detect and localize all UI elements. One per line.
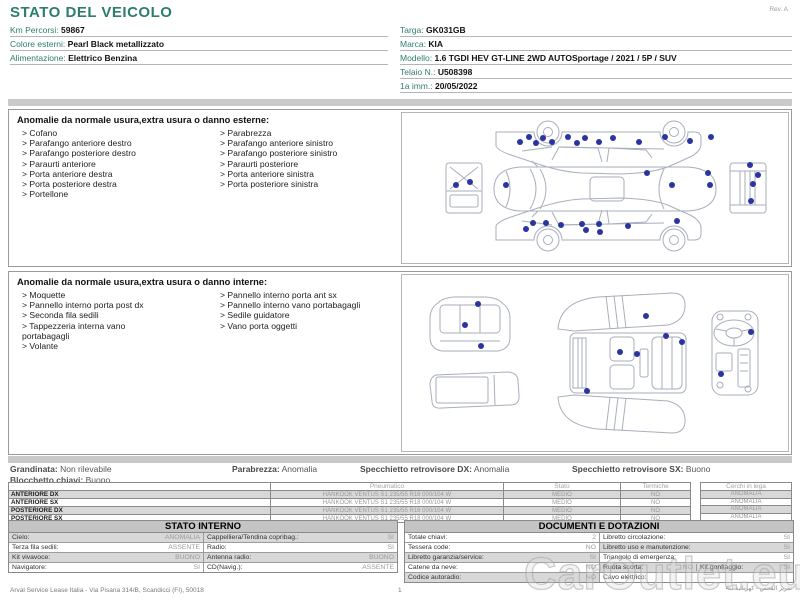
list-item: > Paraurti posteriore bbox=[220, 159, 370, 169]
list-item: > Pannello interno porta post dx bbox=[22, 300, 172, 310]
specchietto-dx-label: Specchietto retrovisore DX: bbox=[360, 464, 472, 474]
interior-anomalies-panel: Anomalie da normale usura,extra usura o … bbox=[8, 271, 792, 455]
list-item: > Pannello interno porta ant sx bbox=[220, 290, 370, 300]
list-item: > Parafango posteriore destro bbox=[22, 148, 172, 158]
exterior-damage-diagram bbox=[401, 112, 789, 264]
tyre-stato: MEDIO bbox=[504, 499, 621, 507]
tyre-spec: HANKOOK VENTUS S1 235/55 R18 000/104 W bbox=[271, 499, 504, 507]
grandinata-value: Non rilevabile bbox=[60, 464, 112, 474]
grandinata-item: Grandinata: Non rilevabile bbox=[10, 464, 112, 474]
cell: Navigatore:SI bbox=[9, 563, 203, 572]
km-label: Km Percorsi: bbox=[10, 25, 59, 35]
colore-value: Pearl Black metallizzato bbox=[68, 39, 164, 49]
interior-car-views bbox=[402, 275, 788, 451]
parabrezza-value: Anomalia bbox=[282, 464, 317, 474]
modello-value: 1.6 TGDI HEV GT-LINE 2WD AUTOSportage / … bbox=[435, 53, 677, 63]
field-label: Catene da neve: bbox=[408, 564, 458, 571]
field-label: Ruota scorta: bbox=[603, 564, 643, 571]
field-label: Totale chiavi: bbox=[408, 534, 447, 541]
list-item: > Parafango anteriore destro bbox=[22, 138, 172, 148]
stato-interno-table: STATO INTERNO Cielo:ANOMALIA Cappelliera… bbox=[8, 520, 398, 573]
field-value: 2 bbox=[589, 534, 596, 541]
modello-label: Modello: bbox=[400, 53, 432, 63]
list-item: > Pannello interno vano portabagagli bbox=[220, 300, 370, 310]
cell: Radio:SI bbox=[203, 543, 397, 552]
table-row: Catene da neve:NO Ruota scorta:NO Kit go… bbox=[405, 563, 793, 573]
cell: Catene da neve:NO bbox=[405, 563, 599, 572]
list-item: > Porta posteriore sinistra bbox=[220, 179, 370, 189]
cerchi-row: ANOMALIA bbox=[701, 506, 792, 514]
tyre-termiche: NO bbox=[621, 491, 691, 499]
tyre-termiche: NO bbox=[621, 499, 691, 507]
tyres-header-pneumatico: Pneumatico bbox=[271, 483, 504, 491]
targa-label: Targa: bbox=[400, 25, 424, 35]
list-item: > Parabrezza bbox=[220, 128, 370, 138]
revision-label: Rev. A bbox=[769, 6, 788, 13]
exterior-car-views bbox=[402, 113, 788, 263]
table-row: Libretto garanzia/service:SI Triangolo d… bbox=[405, 553, 793, 563]
list-item: > Seconda fila sedili bbox=[22, 310, 172, 320]
tyre-row: POSTERIORE DX HANKOOK VENTUS S1 235/55 R… bbox=[9, 507, 691, 515]
table-row: Cielo:ANOMALIA Cappelliera/Tendina copri… bbox=[9, 533, 397, 543]
cerchi-header: Cerchi in lega bbox=[701, 483, 792, 491]
km-value: 59867 bbox=[61, 25, 85, 35]
cerchi-table: Cerchi in lega ANOMALIA ANOMALIA ANOMALI… bbox=[700, 482, 792, 521]
imm-label: 1a imm.: bbox=[400, 81, 433, 91]
cell: Triangolo di emergenza:SI bbox=[599, 553, 793, 562]
field-value: SI bbox=[781, 534, 790, 541]
documenti-table: DOCUMENTI E DOTAZIONI Totale chiavi:2 Li… bbox=[404, 520, 794, 583]
field-value: SI bbox=[587, 554, 596, 561]
grandinata-label: Grandinata: bbox=[10, 464, 58, 474]
info-row-alimentazione: Alimentazione: Elettrico Benzina bbox=[10, 51, 388, 65]
cell: Totale chiavi:2 bbox=[405, 533, 599, 542]
cerchi-header-row: Cerchi in lega bbox=[701, 483, 792, 491]
list-item: > Parafango anteriore sinistro bbox=[220, 138, 370, 148]
interior-list-col2: > Pannello interno porta ant sx > Pannel… bbox=[220, 290, 370, 351]
field-label: Triangolo di emergenza: bbox=[603, 554, 676, 561]
parabrezza-label: Parabrezza: bbox=[232, 464, 280, 474]
field-label: Kit vivavoce: bbox=[12, 554, 50, 561]
info-row-modello: Modello: 1.6 TGDI HEV GT-LINE 2WD AUTOSp… bbox=[400, 51, 792, 65]
list-item: > Porta anteriore destra bbox=[22, 169, 172, 179]
list-item: > Paraurti anteriore bbox=[22, 159, 172, 169]
cell: Kit vivavoce:BUONO bbox=[9, 553, 203, 562]
footer-page-number: 1 bbox=[398, 587, 402, 594]
vehicle-condition-report: { "colors": { "accent": "#2e7d6e", "dot"… bbox=[0, 0, 800, 600]
colore-label: Colore esterni: bbox=[10, 39, 65, 49]
stato-interno-title: STATO INTERNO bbox=[9, 521, 397, 533]
separator-bar-bottom bbox=[8, 456, 792, 463]
field-value: SI bbox=[191, 564, 200, 571]
list-item: > Sedile guidatore bbox=[220, 310, 370, 320]
list-item: > Tappezzeria interna vano portabagagli bbox=[22, 321, 172, 341]
tyre-termiche: NO bbox=[621, 507, 691, 515]
specchietto-dx-value: Anomalia bbox=[474, 464, 509, 474]
cell: Libretto garanzia/service:SI bbox=[405, 553, 599, 562]
list-item: > Porta posteriore destra bbox=[22, 179, 172, 189]
tyre-stato: MEDIO bbox=[504, 491, 621, 499]
sub-cell: Kit gonfiaggio:SI bbox=[696, 564, 790, 571]
cerchi-row: ANOMALIA bbox=[701, 491, 792, 499]
field-value: NO bbox=[583, 544, 596, 551]
tyre-position: POSTERIORE DX bbox=[9, 507, 271, 515]
field-label: Cappelliera/Tendina copribag.: bbox=[207, 534, 299, 541]
tyres-header-stato: Stato bbox=[504, 483, 621, 491]
separator-bar-top bbox=[8, 99, 792, 106]
field-label: CD(Navig.): bbox=[207, 564, 243, 571]
cell: Libretto circolazione:SI bbox=[599, 533, 793, 542]
tyres-header-termiche: Termiche bbox=[621, 483, 691, 491]
cell: Antenna radio:BUONO bbox=[203, 553, 397, 562]
list-item: > Moquette bbox=[22, 290, 172, 300]
field-value: SI bbox=[781, 564, 790, 571]
vehicle-info-right: Targa: GK031GB Marca: KIA Modello: 1.6 T… bbox=[400, 23, 792, 93]
alimentazione-value: Elettrico Benzina bbox=[68, 53, 137, 63]
field-label: Antenna radio: bbox=[207, 554, 251, 561]
exterior-anomalies-panel: Anomalie da normale usura,extra usura o … bbox=[8, 109, 792, 267]
cell: Tessera code:NO bbox=[405, 543, 599, 552]
targa-value: GK031GB bbox=[426, 25, 466, 35]
cerchi-row: ANOMALIA bbox=[701, 498, 792, 506]
list-item: > Portellone bbox=[22, 189, 172, 199]
page-title: STATO DEL VEICOLO bbox=[10, 4, 172, 21]
info-row-marca: Marca: KIA bbox=[400, 37, 792, 51]
table-row: Totale chiavi:2 Libretto circolazione:SI bbox=[405, 533, 793, 543]
field-value: BUONO bbox=[366, 554, 394, 561]
info-row-immatricolazione: 1a imm.: 20/05/2022 bbox=[400, 79, 792, 93]
info-row-km: Km Percorsi: 59867 bbox=[10, 23, 388, 37]
parabrezza-item: Parabrezza: Anomalia bbox=[232, 464, 317, 474]
info-row-targa: Targa: GK031GB bbox=[400, 23, 792, 37]
cell: Ruota scorta:NO Kit gonfiaggio:SI bbox=[599, 563, 793, 572]
tyre-spec: HANKOOK VENTUS S1 235/55 R18 000/104 W bbox=[271, 491, 504, 499]
table-row: Kit vivavoce:BUONO Antenna radio:BUONO bbox=[9, 553, 397, 563]
tyres-table: Pneumatico Stato Termiche ANTERIORE DX H… bbox=[8, 482, 691, 523]
footer-note: 4D تقرير الفحص - كهربائية bbox=[726, 585, 792, 592]
tyres-header-row: Pneumatico Stato Termiche bbox=[9, 483, 691, 491]
list-item: > Parafango posteriore sinistro bbox=[220, 148, 370, 158]
documenti-title: DOCUMENTI E DOTAZIONI bbox=[405, 521, 793, 533]
field-value: ANOMALIA bbox=[162, 534, 200, 541]
cell: Terza fila sedili:ASSENTE bbox=[9, 543, 203, 552]
table-row: Tessera code:NO Libretto uso e manutenzi… bbox=[405, 543, 793, 553]
exterior-list-col2: > Parabrezza > Parafango anteriore sinis… bbox=[220, 128, 370, 199]
field-label: Libretto garanzia/service: bbox=[408, 554, 484, 561]
table-row: Terza fila sedili:ASSENTE Radio:SI bbox=[9, 543, 397, 553]
tyre-position: ANTERIORE DX bbox=[9, 491, 271, 499]
sub-cell: Ruota scorta:NO bbox=[603, 564, 693, 571]
field-value: SI bbox=[781, 544, 790, 551]
field-label: Cielo: bbox=[12, 534, 29, 541]
field-value: BUONO bbox=[172, 554, 200, 561]
field-label: Libretto circolazione: bbox=[603, 534, 665, 541]
telaio-label: Telaio N.: bbox=[400, 67, 435, 77]
exterior-list-col1: > Cofano > Parafango anteriore destro > … bbox=[22, 128, 172, 199]
cell: CD(Navig.):ASSENTE bbox=[203, 563, 397, 572]
cerchi-value: ANOMALIA bbox=[701, 491, 792, 499]
field-value: NO bbox=[583, 564, 596, 571]
specchietto-dx-item: Specchietto retrovisore DX: Anomalia bbox=[360, 464, 509, 474]
field-value: ASSENTE bbox=[359, 564, 394, 571]
field-value: NO bbox=[680, 564, 693, 571]
specchietto-sx-item: Specchietto retrovisore SX: Buono bbox=[572, 464, 710, 474]
alimentazione-label: Alimentazione: bbox=[10, 53, 66, 63]
cell: Codice autoradio:NO bbox=[405, 573, 599, 582]
cell: Cielo:ANOMALIA bbox=[9, 533, 203, 542]
cerchi-value: ANOMALIA bbox=[701, 498, 792, 506]
imm-value: 20/05/2022 bbox=[435, 81, 478, 91]
marca-value: KIA bbox=[428, 39, 443, 49]
field-label: Terza fila sedili: bbox=[12, 544, 58, 551]
field-value: SI bbox=[781, 554, 790, 561]
field-label: Tessera code: bbox=[408, 544, 450, 551]
footer-company: Arval Service Lease Italia - Via Pisana … bbox=[10, 587, 204, 594]
field-value: ASSENTE bbox=[165, 544, 200, 551]
info-row-colore: Colore esterni: Pearl Black metallizzato bbox=[10, 37, 388, 51]
field-label: Kit gonfiaggio: bbox=[700, 564, 743, 571]
tyre-stato: MEDIO bbox=[504, 507, 621, 515]
cell: Libretto uso e manutenzione:SI bbox=[599, 543, 793, 552]
field-value: NO bbox=[583, 574, 596, 581]
specchietto-sx-label: Specchietto retrovisore SX: bbox=[572, 464, 683, 474]
specchietto-sx-value: Buono bbox=[686, 464, 711, 474]
interior-list-col1: > Moquette > Pannello interno porta post… bbox=[22, 290, 172, 351]
info-row-telaio: Telaio N.: U508398 bbox=[400, 65, 792, 79]
field-label: Radio: bbox=[207, 544, 227, 551]
tyres-header-empty bbox=[9, 483, 271, 491]
tyre-spec: HANKOOK VENTUS S1 235/55 R18 000/104 W bbox=[271, 507, 504, 515]
field-label: Codice autoradio: bbox=[408, 574, 461, 581]
list-item: > Cofano bbox=[22, 128, 172, 138]
field-label: Navigatore: bbox=[12, 564, 47, 571]
cell: Cappelliera/Tendina copribag.:SI bbox=[203, 533, 397, 542]
vehicle-info-left: Km Percorsi: 59867 Colore esterni: Pearl… bbox=[10, 23, 388, 65]
list-item: > Volante bbox=[22, 341, 172, 351]
cell: Cavo elettrico: bbox=[599, 573, 793, 582]
field-label: Libretto uso e manutenzione: bbox=[603, 544, 691, 551]
table-row: Navigatore:SI CD(Navig.):ASSENTE bbox=[9, 563, 397, 572]
telaio-value: U508398 bbox=[438, 67, 473, 77]
list-item: > Vano porta oggetti bbox=[220, 321, 370, 331]
marca-label: Marca: bbox=[400, 39, 426, 49]
field-label: Cavo elettrico: bbox=[603, 574, 646, 581]
tyre-position: ANTERIORE SX bbox=[9, 499, 271, 507]
tyre-row: ANTERIORE DX HANKOOK VENTUS S1 235/55 R1… bbox=[9, 491, 691, 499]
list-item: > Porta anteriore sinistra bbox=[220, 169, 370, 179]
table-row: Codice autoradio:NO Cavo elettrico: bbox=[405, 573, 793, 582]
cerchi-value: ANOMALIA bbox=[701, 506, 792, 514]
interior-damage-diagram bbox=[401, 274, 789, 452]
field-value: SI bbox=[385, 534, 394, 541]
tyre-row: ANTERIORE SX HANKOOK VENTUS S1 235/55 R1… bbox=[9, 499, 691, 507]
field-value: SI bbox=[385, 544, 394, 551]
